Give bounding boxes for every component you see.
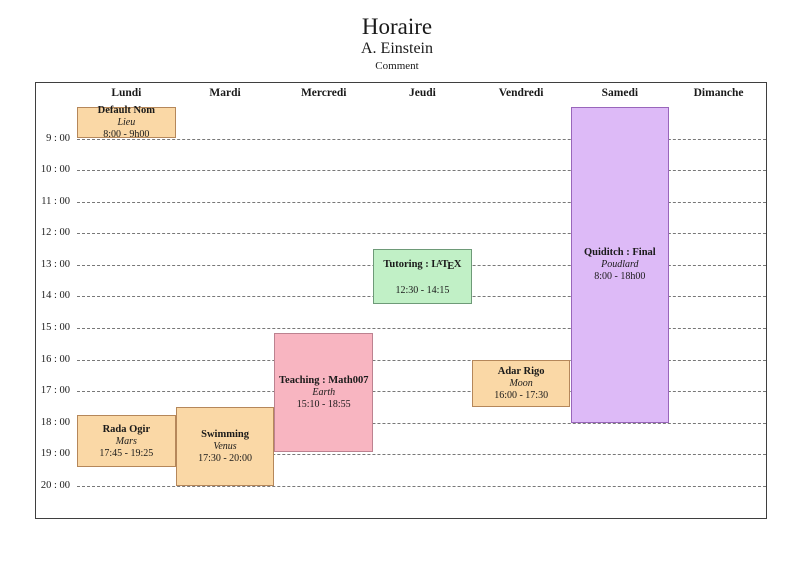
- page-title: Horaire: [0, 14, 794, 40]
- time-label-16: 16 : 00: [38, 353, 70, 367]
- hour-line-20: [77, 486, 766, 487]
- day-header-mercredi: Mercredi: [274, 86, 373, 101]
- event-block-quiditch-final: Quiditch : FinalPoudlard8:00 - 18h00: [571, 107, 670, 423]
- time-label-15: 15 : 00: [38, 321, 70, 335]
- event-time-range: 17:45 - 19:25: [99, 448, 153, 460]
- event-title: Default Nom: [98, 104, 155, 117]
- event-title: Quiditch : Final: [584, 246, 656, 259]
- time-label-13: 13 : 00: [38, 258, 70, 272]
- time-label-12: 12 : 00: [38, 226, 70, 240]
- time-label-9: 9 : 00: [38, 132, 70, 146]
- event-location: Lieu: [117, 117, 135, 129]
- day-header-samedi: Samedi: [571, 86, 670, 101]
- event-title: Swimming: [201, 428, 249, 441]
- time-label-14: 14 : 00: [38, 289, 70, 303]
- day-header-dimanche: Dimanche: [669, 86, 768, 101]
- event-time-range: 8:00 - 9h00: [103, 129, 149, 141]
- event-location: Moon: [509, 378, 532, 390]
- event-title: Rada Ogir: [103, 423, 151, 436]
- time-label-10: 10 : 00: [38, 163, 70, 177]
- event-time-range: 15:10 - 18:55: [297, 399, 351, 411]
- event-time-range: 17:30 - 20:00: [198, 453, 252, 465]
- time-label-18: 18 : 00: [38, 416, 70, 430]
- event-block-swimming: SwimmingVenus17:30 - 20:00: [176, 407, 275, 486]
- event-title: Tutoring : LATEX: [383, 256, 461, 273]
- event-block-rada-ogir: Rada OgirMars17:45 - 19:25: [77, 415, 176, 468]
- event-location: Poudlard: [601, 259, 638, 271]
- timetable-grid: 9 : 0010 : 0011 : 0012 : 0013 : 0014 : 0…: [35, 82, 767, 519]
- day-header-lundi: Lundi: [77, 86, 176, 101]
- event-block-adar-rigo: Adar RigoMoon16:00 - 17:30: [472, 360, 571, 407]
- event-block-default-nom: Default NomLieu8:00 - 9h00: [77, 107, 176, 139]
- time-label-20: 20 : 00: [38, 479, 70, 493]
- latex-logo-e: E: [447, 261, 454, 272]
- time-label-19: 19 : 00: [38, 447, 70, 461]
- event-time-range: 8:00 - 18h00: [594, 271, 645, 283]
- comment-line: Comment: [0, 60, 794, 72]
- event-time-range: 16:00 - 17:30: [494, 390, 548, 402]
- time-label-17: 17 : 00: [38, 384, 70, 398]
- event-title: Teaching : Math007: [279, 374, 368, 387]
- day-header-jeudi: Jeudi: [373, 86, 472, 101]
- event-time-range: 12:30 - 14:15: [395, 285, 449, 297]
- event-block-teaching-math007: Teaching : Math007Earth15:10 - 18:55: [274, 333, 373, 451]
- latex-logo-a: A: [437, 258, 442, 267]
- title-block: Horaire A. Einstein Comment: [0, 14, 794, 72]
- event-location: Earth: [312, 387, 335, 399]
- author-subtitle: A. Einstein: [0, 40, 794, 58]
- event-location: Mars: [116, 436, 137, 448]
- event-title: Adar Rigo: [498, 365, 545, 378]
- day-header-mardi: Mardi: [176, 86, 275, 101]
- event-location: Venus: [213, 441, 236, 453]
- event-block-tutoring-latex: Tutoring : LATEX12:30 - 14:15: [373, 249, 472, 304]
- schedule-page: Horaire A. Einstein Comment 9 : 0010 : 0…: [0, 0, 794, 561]
- day-header-vendredi: Vendredi: [472, 86, 571, 101]
- time-label-11: 11 : 00: [38, 195, 70, 209]
